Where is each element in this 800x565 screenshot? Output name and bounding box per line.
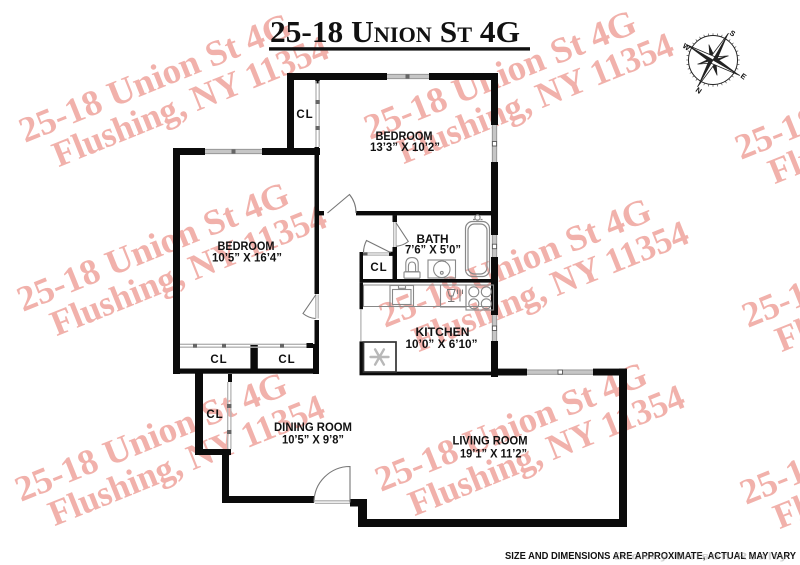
svg-text:CL: CL (210, 354, 227, 366)
svg-text:Dıckey Wılson Realty: Dıckey Wılson Realty (614, 552, 789, 563)
svg-text:CL: CL (206, 409, 223, 421)
svg-text:CL: CL (278, 354, 295, 366)
svg-text:CL: CL (370, 262, 387, 274)
svg-text:10’5” X 9’8”: 10’5” X 9’8” (282, 433, 344, 447)
svg-text:25-18 Union St 4G: 25-18 Union St 4G (270, 14, 520, 49)
svg-text:13’3” X 10’2”: 13’3” X 10’2” (370, 140, 440, 154)
svg-text:7’6” X 5’0”: 7’6” X 5’0” (405, 243, 461, 257)
svg-text:19’1” X 11’2”: 19’1” X 11’2” (460, 447, 527, 461)
svg-text:CL: CL (296, 109, 313, 121)
svg-text:10’5” X 16’4”: 10’5” X 16’4” (212, 251, 282, 265)
svg-text:10’0” X 6’10”: 10’0” X 6’10” (406, 337, 478, 351)
svg-text:LIVING ROOM: LIVING ROOM (453, 434, 528, 448)
